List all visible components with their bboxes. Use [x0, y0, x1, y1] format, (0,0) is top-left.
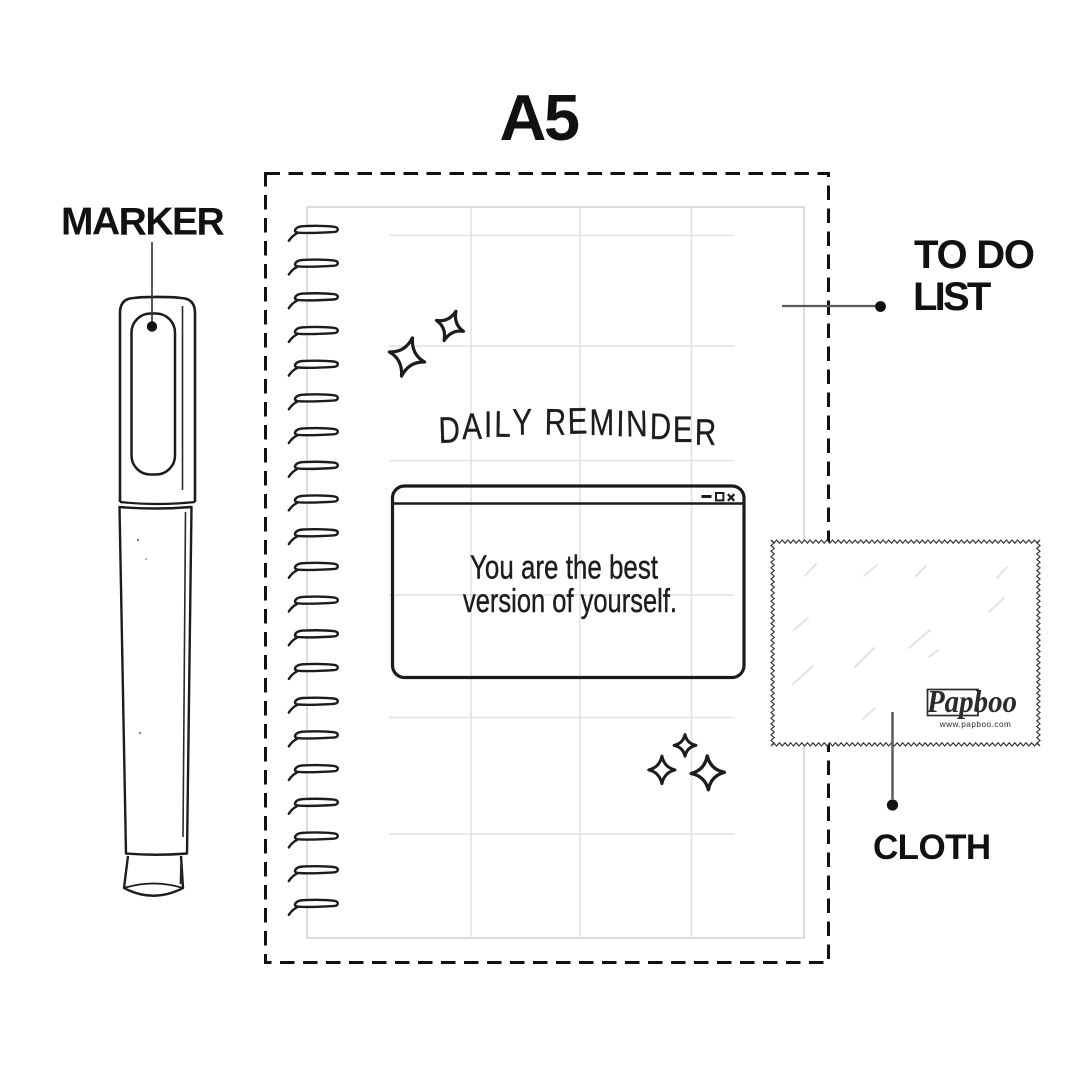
svg-text:I: I [484, 405, 492, 446]
svg-text:Papboo: Papboo [926, 683, 1017, 719]
svg-text:Y: Y [512, 402, 532, 443]
svg-text:E: E [673, 410, 693, 451]
svg-text:www.papboo.com: www.papboo.com [939, 720, 1012, 729]
svg-text:A: A [462, 407, 483, 448]
svg-text:I: I [616, 404, 625, 445]
svg-text:version of yourself.: version of yourself. [463, 582, 677, 619]
svg-text:R: R [544, 402, 566, 443]
svg-text:E: E [567, 401, 587, 442]
svg-text:TO DO: TO DO [914, 233, 1034, 277]
svg-text:A5: A5 [499, 81, 578, 154]
svg-text:D: D [438, 410, 461, 452]
svg-text:LIST: LIST [913, 275, 991, 319]
svg-text:R: R [694, 413, 716, 454]
svg-text:CLOTH: CLOTH [873, 828, 991, 867]
svg-text:L: L [494, 405, 511, 446]
svg-text:MARKER: MARKER [61, 201, 224, 244]
svg-text:You are the best: You are the best [470, 549, 658, 586]
svg-text:D: D [649, 407, 671, 448]
svg-text:N: N [626, 404, 648, 445]
svg-text:M: M [589, 403, 614, 444]
